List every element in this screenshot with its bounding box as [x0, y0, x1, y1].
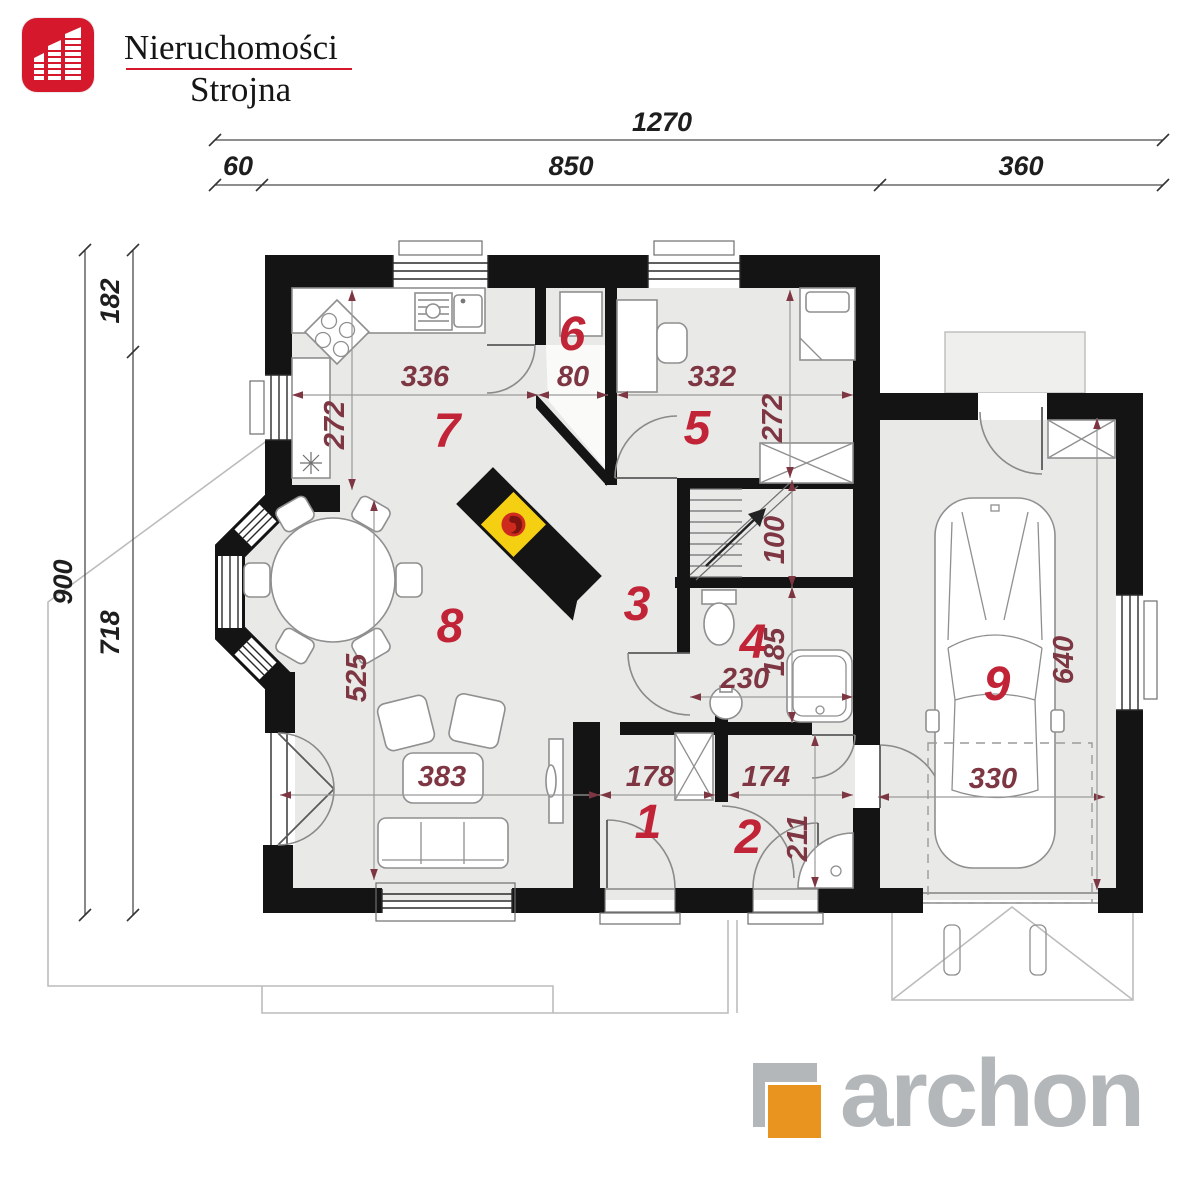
room-label-2: 2: [734, 811, 762, 864]
dim-kitchen-width: 336: [401, 361, 450, 393]
dim-pantry-width: 80: [557, 361, 589, 393]
archon-orange-square: [765, 1082, 824, 1141]
stair-wall: [677, 478, 690, 577]
pantry-bedroom-wall: [605, 255, 617, 485]
dim-kitchen-depth: 272: [319, 401, 351, 450]
armchair: [448, 692, 507, 749]
agency-name-line2: Strojna: [190, 70, 291, 110]
room-label-3: 3: [624, 578, 651, 631]
room-label-9: 9: [984, 658, 1011, 711]
dim-house-width: 850: [548, 151, 593, 181]
archon-logo: archon: [748, 1055, 1188, 1145]
understair-wall: [675, 577, 853, 588]
dim-garage-gate-width: 330: [969, 763, 1017, 795]
living-hall-wall: [573, 722, 600, 888]
sofa: [378, 818, 508, 868]
room-label-8: 8: [437, 600, 464, 653]
dim-total-depth: 900: [48, 559, 78, 604]
toilet: [702, 590, 736, 645]
dim-bedroom-depth: 272: [757, 394, 789, 443]
tv-cabinet: [546, 739, 563, 823]
dim-lower-depth: 718: [95, 610, 125, 655]
agency-logo: Nieruchomości Strojna: [22, 12, 382, 112]
kitchen-left-window: [250, 375, 292, 440]
dim-vestibule-width: 174: [742, 761, 790, 793]
wardrobe-hall: [675, 733, 713, 800]
kitchen-sink: [415, 293, 482, 330]
fridge-symbol: [300, 452, 322, 474]
agency-logo-icon: [22, 18, 94, 92]
dim-living-length: 525: [341, 653, 373, 702]
garage-right-window: [1116, 595, 1157, 710]
room-label-6: 6: [559, 308, 586, 361]
archon-wordmark: archon: [840, 1039, 1142, 1149]
dim-garage-width: 360: [998, 151, 1043, 181]
wardrobe-bedroom: [760, 443, 853, 483]
bathtub: [787, 650, 852, 722]
dim-living-width: 383: [418, 761, 466, 793]
bed: [800, 288, 855, 360]
floor-plan-drawing: 1270 60 850 360 900 182 718 336 80 332 2…: [0, 0, 1200, 1200]
kitchen-top-window: [393, 241, 488, 288]
room-label-5: 5: [684, 402, 712, 455]
dim-bedroom-width: 332: [688, 361, 736, 393]
back-porch: [945, 332, 1085, 393]
dim-total-width: 1270: [632, 107, 692, 137]
agency-name-line1: Nieruchomości: [124, 28, 374, 68]
dim-upper-depth: 182: [95, 278, 125, 323]
dim-garage-depth: 640: [1048, 636, 1080, 684]
bedroom-top-window: [648, 241, 740, 288]
dim-left-setback: 60: [223, 151, 253, 181]
wardrobe-garage: [1048, 420, 1115, 458]
room-label-1: 1: [635, 796, 662, 849]
bathroom-left-wall: [677, 588, 690, 653]
pantry-left-wall: [535, 255, 546, 345]
room-label-7: 7: [434, 405, 463, 458]
dim-vestibule-depth: 211: [782, 815, 814, 862]
dim-hall-width: 178: [626, 761, 675, 793]
dim-stair-passage: 100: [759, 516, 791, 564]
floor-plan-page: 1270 60 850 360 900 182 718 336 80 332 2…: [0, 0, 1200, 1200]
room-label-4: 4: [739, 616, 767, 669]
